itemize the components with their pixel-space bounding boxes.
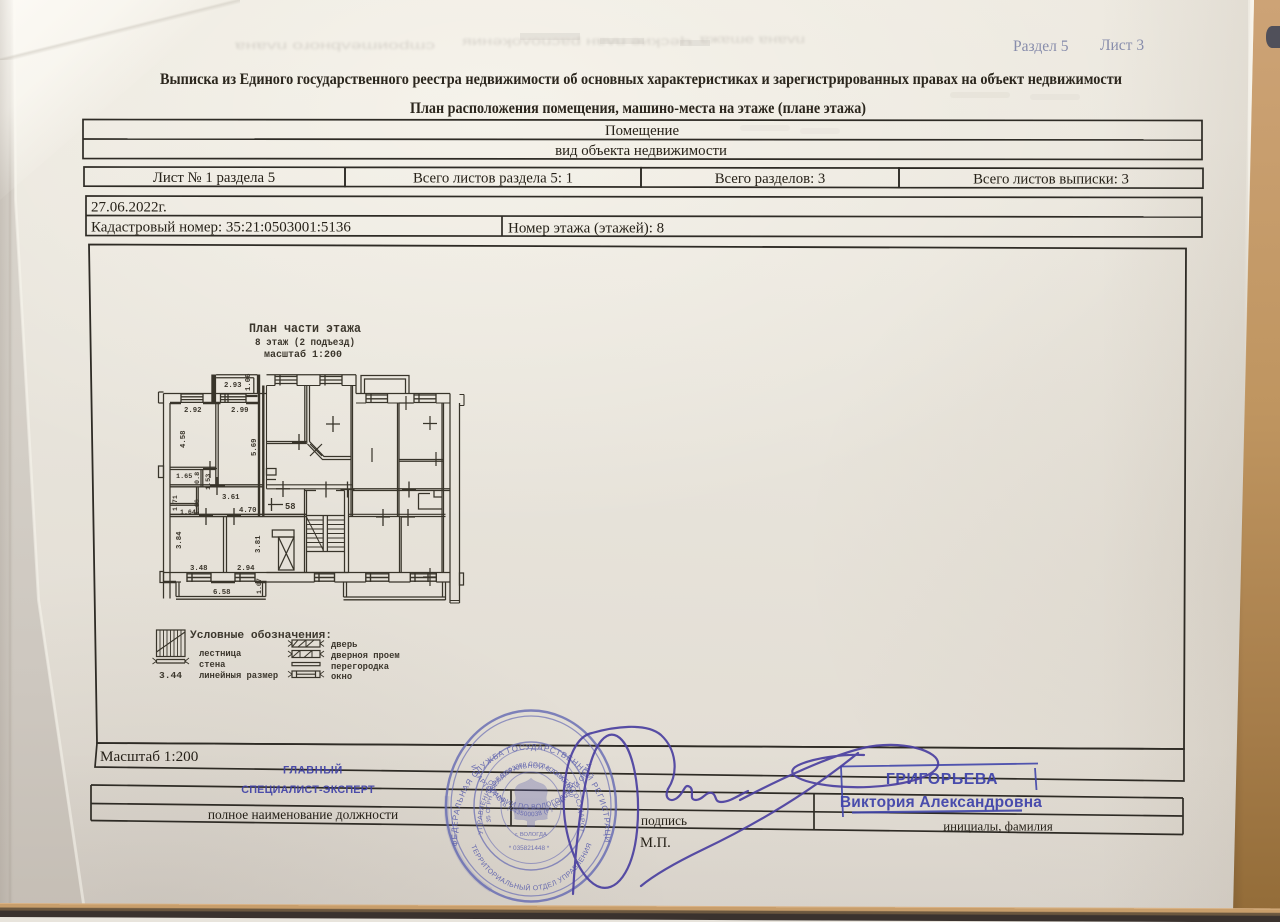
svg-text:М.П.: М.П. [640, 835, 671, 851]
svg-text:полное наименование должности: полное наименование должности [208, 807, 398, 822]
svg-text:2.99: 2.99 [231, 407, 249, 415]
svg-text:дверь: дверь [331, 640, 357, 650]
svg-text:Виктория Александровна: Виктория Александровна [840, 794, 1042, 811]
svg-text:1.53: 1.53 [205, 474, 213, 490]
svg-text:линейныя размер: линейныя размер [199, 671, 278, 681]
svg-text:ГРИГОРЬЕВА: ГРИГОРЬЕВА [886, 771, 998, 788]
svg-text:План расположения помещения, м: План расположения помещения, машино-мест… [410, 100, 866, 117]
svg-text:г. ВОЛОГДА: г. ВОЛОГДА [515, 832, 547, 838]
svg-text:вид объекта недвижимости: вид объекта недвижимости [555, 143, 727, 159]
svg-text:5.69: 5.69 [251, 438, 259, 456]
svg-text:подпись: подпись [641, 813, 687, 828]
svg-text:Лист 3: Лист 3 [1100, 37, 1144, 54]
svg-text:Всего листов раздела 5: 1: Всего листов раздела 5: 1 [413, 171, 573, 187]
svg-text:Кадастровый номер: 35:21:05030: Кадастровый номер: 35:21:0503001:5136 [91, 220, 351, 236]
svg-text:3.48: 3.48 [190, 565, 208, 573]
svg-text:8 этаж (2 подъезд): 8 этаж (2 подъезд) [255, 337, 355, 349]
svg-text:6.58: 6.58 [213, 589, 231, 597]
svg-text:дверноя проем: дверноя проем [331, 651, 400, 661]
svg-text:4.58: 4.58 [180, 430, 188, 448]
svg-text:Всего разделов: 3: Всего разделов: 3 [715, 171, 826, 187]
svg-text:1.66: 1.66 [194, 499, 201, 515]
svg-text:Номер этажа (этажей): 8: Номер этажа (этажей): 8 [508, 221, 664, 237]
svg-text:3.44: 3.44 [159, 670, 182, 681]
svg-text:перегородка: перегородка [331, 662, 390, 672]
svg-text:ГЛАВНЫЙ: ГЛАВНЫЙ [283, 764, 343, 777]
svg-text:2.94: 2.94 [237, 565, 255, 573]
svg-text:2.93: 2.93 [224, 382, 242, 390]
svg-text:Масштаб 1:200: Масштаб 1:200 [100, 748, 199, 765]
svg-text:58: 58 [285, 502, 296, 512]
svg-text:Помещение: Помещение [605, 123, 680, 139]
svg-text:СПЕЦИАЛИСТ-ЭКСПЕРТ: СПЕЦИАЛИСТ-ЭКСПЕРТ [241, 784, 375, 796]
svg-text:1.07: 1.07 [256, 578, 263, 594]
svg-text:3.84: 3.84 [176, 531, 184, 549]
svg-text:27.06.2022г.: 27.06.2022г. [91, 200, 167, 216]
svg-text:ɐжɐɯе ɐнɐvu: ɐжɐɯе ɐнɐvu [700, 32, 805, 46]
svg-text:Всего листов выписки: 3: Всего листов выписки: 3 [973, 172, 1129, 188]
svg-text:0.8: 0.8 [194, 472, 202, 484]
svg-text:План части этажа: План части этажа [249, 322, 361, 336]
svg-text:3.81: 3.81 [255, 535, 263, 553]
svg-text:стена: стена [199, 660, 226, 670]
svg-text:ɐнɐvu оɹонqvǝɯиоdɯɔ: ɐнɐvu оɹонqvǝɯиоdɯɔ [235, 38, 435, 52]
svg-text:1.06: 1.06 [245, 373, 253, 391]
svg-text:масштаб 1:200: масштаб 1:200 [264, 348, 342, 361]
svg-text:Лист № 1 раздела 5: Лист № 1 раздела 5 [153, 170, 275, 186]
svg-text:* 035821448 *: * 035821448 * [509, 845, 550, 852]
svg-text:2.92: 2.92 [184, 407, 202, 415]
svg-text:лестница: лестница [199, 649, 242, 659]
svg-text:1.65: 1.65 [176, 473, 192, 481]
svg-text:1.71: 1.71 [172, 495, 179, 511]
svg-text:Раздел 5: Раздел 5 [1013, 38, 1069, 55]
svg-text:окно: окно [331, 672, 352, 682]
svg-text:3.61: 3.61 [222, 494, 240, 502]
svg-text:Выписка из Единого государстве: Выписка из Единого государственного реес… [160, 71, 1122, 88]
svg-text:инициалы, фамилия: инициалы, фамилия [943, 820, 1053, 834]
